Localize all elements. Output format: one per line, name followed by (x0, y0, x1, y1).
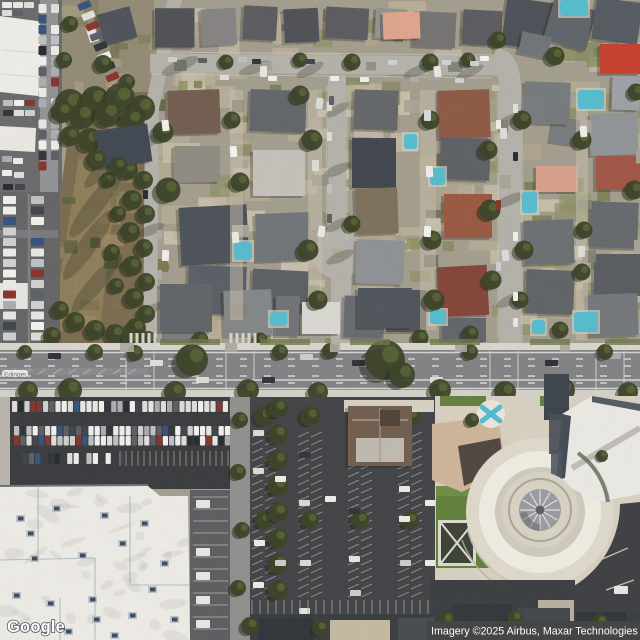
svg-text:Imagery ©2025 Airbus, Maxar Te: Imagery ©2025 Airbus, Maxar Technologies (431, 626, 638, 638)
svg-text:Google: Google (7, 618, 65, 636)
